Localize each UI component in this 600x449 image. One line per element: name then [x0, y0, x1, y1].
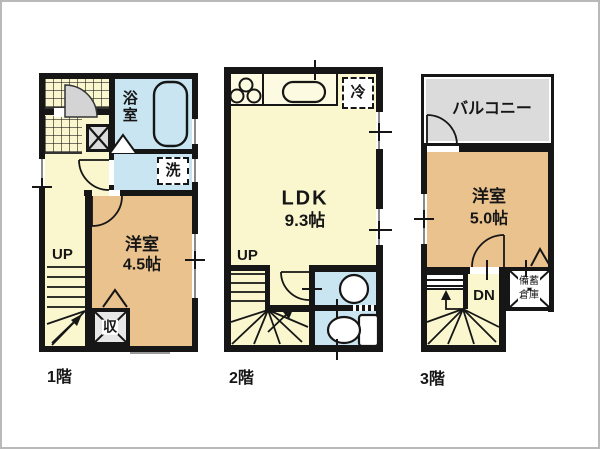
x-mark-icon [87, 125, 110, 151]
ldk-size: 9.3帖 [285, 212, 326, 230]
toilet-icon [328, 315, 378, 346]
floor3-label: 3階 [420, 372, 445, 389]
bathtub-icon [154, 82, 187, 146]
door-swing-icon [79, 160, 109, 190]
ldk-name: LDK [281, 189, 328, 210]
laundry-label: 洗 [165, 163, 180, 179]
floor1-label: 1階 [47, 370, 72, 387]
balcony-door-swing-icon [427, 115, 457, 145]
balcony-label: バルコニー [452, 102, 532, 119]
closet-label: 収 [102, 320, 118, 335]
western-room-1f-name: 洋室 [125, 236, 159, 254]
kitchen-sink-icon [283, 82, 325, 102]
floor-plan: 浴室 洗 洋室 4.5帖 UP 収 1階 冷 LDK 9.3帖 UP 2階 バル… [0, 0, 600, 449]
stove-burners-icon [231, 79, 261, 103]
stairs-up-2f [231, 274, 308, 344]
refrigerator-label: 冷 [350, 85, 365, 101]
door-swing-icon [92, 196, 122, 226]
washbasin-icon [340, 275, 368, 303]
folding-door-icon [110, 135, 136, 153]
stairs-up-1f [47, 267, 85, 345]
door-swing-icon [281, 272, 309, 300]
storage-label-line2: 倉庫 [518, 291, 540, 302]
floor2-label: 2階 [229, 371, 254, 388]
stairs-down-3f-label: DN [473, 288, 495, 304]
western-room-1f-size: 4.5帖 [123, 258, 161, 275]
stairs-up-2f-label: UP [237, 248, 258, 264]
entrance-door-swing-icon [65, 85, 97, 117]
storage-label-line1: 備蓄 [518, 277, 540, 288]
bathroom-label: 浴室 [121, 90, 137, 124]
folding-door-icon [103, 290, 127, 307]
western-room-3f-size: 5.0帖 [470, 212, 508, 229]
folding-door-icon [531, 249, 550, 266]
stair-direction-arrow-icon [441, 290, 451, 300]
western-room-3f-name: 洋室 [472, 188, 506, 206]
stairs-up-1f-label: UP [52, 247, 73, 263]
